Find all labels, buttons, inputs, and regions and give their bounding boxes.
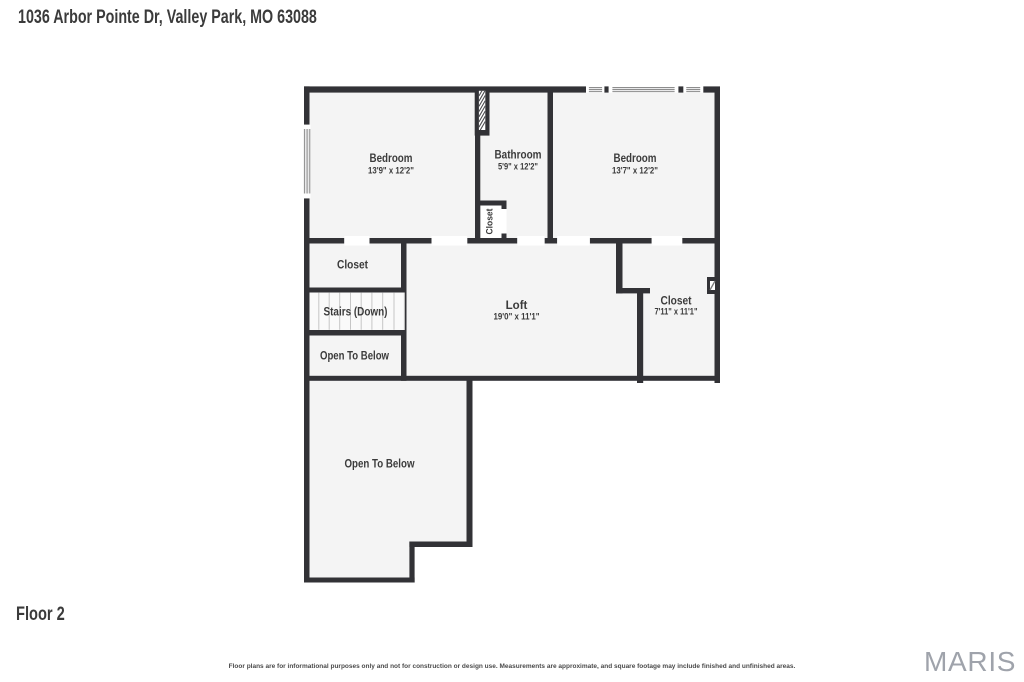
svg-text:7'11" x 11'1": 7'11" x 11'1"	[655, 306, 698, 316]
svg-text:13'7" x 12'2": 13'7" x 12'2"	[612, 165, 658, 175]
svg-text:Closet: Closet	[485, 209, 495, 235]
svg-text:Closet: Closet	[337, 260, 368, 272]
svg-text:Bedroom: Bedroom	[370, 153, 413, 165]
svg-text:19'0" x 11'1": 19'0" x 11'1"	[494, 312, 540, 322]
svg-text:13'9" x 12'2": 13'9" x 12'2"	[368, 165, 414, 175]
svg-text:Open To Below: Open To Below	[345, 459, 415, 471]
svg-text:Stairs (Down): Stairs (Down)	[324, 307, 388, 319]
svg-text:Bedroom: Bedroom	[614, 153, 657, 165]
svg-text:Loft: Loft	[506, 300, 528, 312]
svg-text:Open To Below: Open To Below	[320, 350, 389, 362]
svg-text:Bathroom: Bathroom	[495, 150, 542, 162]
svg-text:5'9" x 12'2": 5'9" x 12'2"	[498, 162, 538, 172]
